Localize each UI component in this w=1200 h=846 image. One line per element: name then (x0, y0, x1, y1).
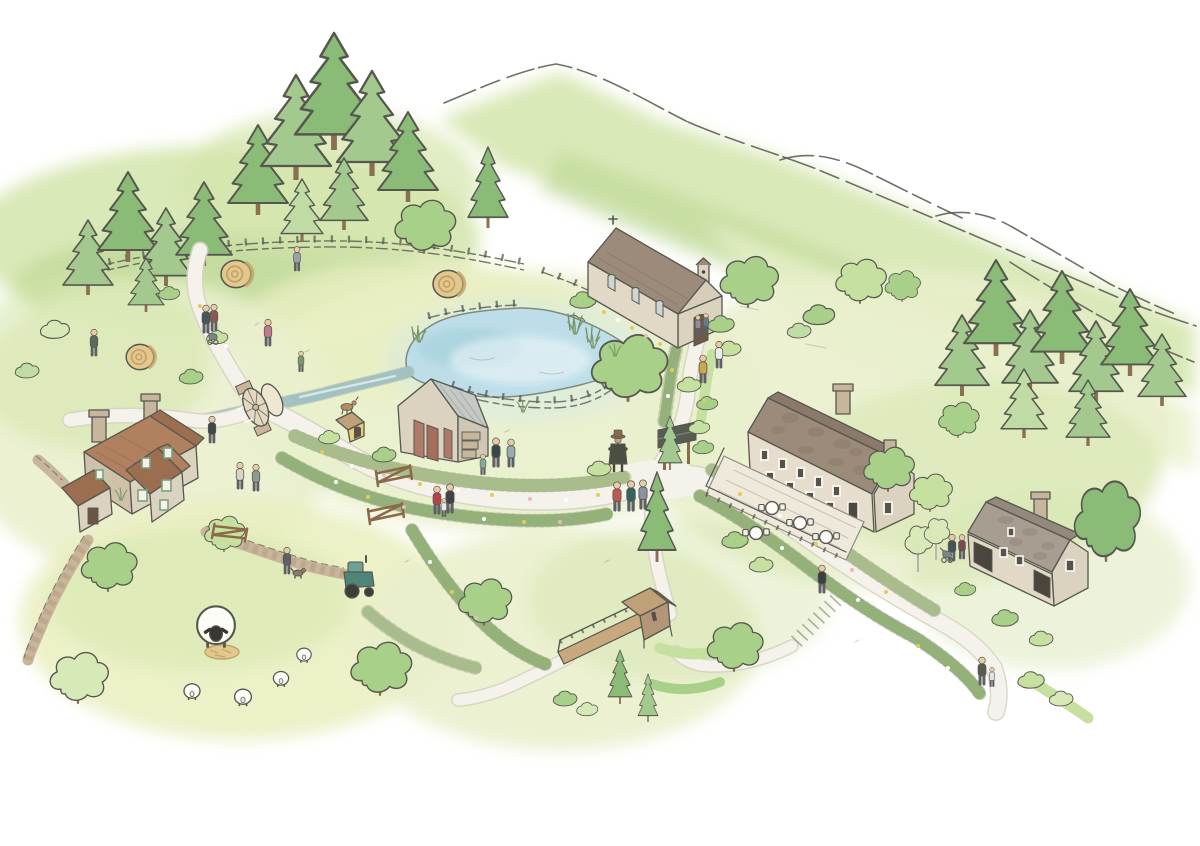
flower-sprite (482, 517, 486, 521)
flower-sprite (856, 598, 860, 602)
flower-sprite (814, 542, 818, 546)
flower-sprite (916, 644, 920, 648)
flower-sprite (366, 495, 370, 499)
flower-sprite (630, 326, 634, 330)
flower-sprite (702, 398, 706, 402)
flower-sprite (658, 342, 662, 346)
bale-sprite (433, 270, 464, 297)
flower-sprite (670, 368, 674, 372)
flower-sprite (402, 505, 406, 509)
village-map-illustration (0, 0, 1200, 846)
flower-sprite (382, 473, 386, 477)
bush-sprite (1018, 672, 1044, 688)
flower-sprite (418, 482, 422, 486)
bale-sprite (221, 260, 252, 287)
hay-pile (205, 645, 239, 659)
flower-sprite (884, 590, 888, 594)
bale-sprite (126, 344, 155, 369)
flower-sprite (522, 520, 526, 524)
flower-sprite (602, 310, 606, 314)
flower-sprite (946, 666, 950, 670)
flower-sprite (616, 318, 620, 322)
flower-sprite (644, 334, 648, 338)
flower-sprite (564, 498, 568, 502)
flower-sprite (198, 304, 202, 308)
flower-sprite (558, 520, 562, 524)
flower-sprite (474, 616, 478, 620)
flower-sprite (224, 344, 228, 348)
flower-sprite (528, 497, 532, 501)
flower-sprite (596, 493, 600, 497)
flower-sprite (850, 568, 854, 572)
flower-sprite (666, 394, 670, 398)
flower-sprite (456, 488, 460, 492)
flower-sprite (334, 480, 338, 484)
flower-sprite (490, 493, 494, 497)
flower-sprite (780, 546, 784, 550)
flower-sprite (450, 590, 454, 594)
map-canvas (0, 0, 1200, 846)
person-sprite (978, 657, 986, 684)
flower-sprite (778, 514, 782, 518)
flower-sprite (320, 450, 324, 454)
flower-sprite (428, 560, 432, 564)
flower-sprite (738, 492, 742, 496)
flower-sprite (350, 464, 354, 468)
